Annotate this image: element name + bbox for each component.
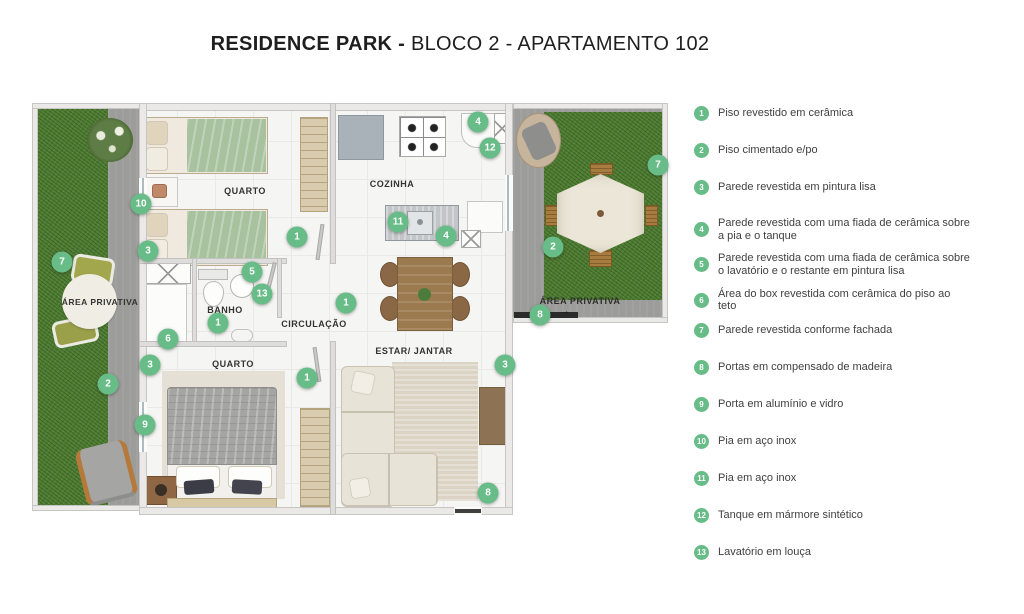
dining-chair-4	[450, 296, 470, 321]
plan-marker-3: 3	[140, 355, 161, 376]
legend-text: Lavatório em louça	[718, 546, 811, 559]
wall-kitchen-divider	[330, 103, 336, 264]
side-table-decor-icon	[155, 484, 167, 496]
legend-item-4: 4Parede revestida com uma fiada de cerâm…	[694, 217, 996, 242]
plant-icon	[87, 118, 133, 162]
tv-stand	[479, 387, 506, 445]
unit-wall-left	[139, 103, 147, 515]
bench-top	[590, 163, 613, 175]
legend-text: Porta em alumínio e vidro	[718, 398, 843, 411]
plan-marker-8: 8	[478, 483, 499, 504]
legend-badge-5: 5	[694, 257, 709, 272]
legend-item-8: 8Portas em compensado de madeira	[694, 360, 996, 375]
legend-badge-7: 7	[694, 323, 709, 338]
estar-door-icon	[455, 509, 481, 513]
room-label-area-privativa-left: ÁREA PRIVATIVA	[62, 297, 139, 307]
plan-marker-5: 5	[242, 262, 263, 283]
plan-marker-9: 9	[135, 415, 156, 436]
room-label-quarto1: QUARTO	[224, 186, 266, 196]
sofa-pillow-2	[348, 476, 371, 499]
left-patio-wall-left	[32, 103, 38, 511]
wall-banho-left	[192, 258, 197, 346]
accent-pillow-2	[232, 479, 263, 495]
legend-item-13: 13Lavatório em louça	[694, 545, 996, 560]
left-patio-wall-top	[32, 103, 140, 109]
legend-item-11: 11Pia em aço inox	[694, 471, 996, 486]
table-plant-icon	[418, 288, 431, 301]
room-label-quarto2: QUARTO	[212, 359, 254, 369]
legend-item-5: 5Parede revestida com uma fiada de cerâm…	[694, 252, 996, 277]
wardrobe-quarto2	[300, 408, 330, 507]
dining-chair-2	[450, 262, 470, 287]
toilet-tank-icon	[198, 269, 228, 280]
bed-single-2-blanket	[187, 211, 266, 264]
wardrobe-quarto1	[300, 117, 328, 212]
legend-text: Tanque em mármore sintético	[718, 509, 863, 522]
unit-wall-top	[139, 103, 513, 111]
legend-badge-3: 3	[694, 180, 709, 195]
legend-text: Pia em aço inox	[718, 435, 796, 448]
legend-text: Parede revestida conforme fachada	[718, 324, 892, 337]
legend-badge-9: 9	[694, 397, 709, 412]
plan-marker-13: 13	[252, 284, 273, 305]
plan-marker-1: 1	[297, 368, 318, 389]
title-project-name: RESIDENCE PARK -	[211, 33, 405, 55]
umbrella-pole-icon	[597, 210, 604, 217]
vanity-top-icon	[145, 263, 191, 284]
plan-marker-7: 7	[52, 252, 73, 273]
left-patio-wall-bottom	[32, 505, 140, 511]
sofa-pillow-1	[350, 370, 376, 396]
bed-single-1-pillow-2	[146, 147, 168, 171]
right-patio-wall-right	[662, 103, 668, 323]
plan-marker-10: 10	[131, 194, 152, 215]
plan-marker-2: 2	[98, 374, 119, 395]
legend-item-2: 2Piso cimentado e/po	[694, 143, 996, 158]
title-unit-name: BLOCO 2 - APARTAMENTO 102	[405, 33, 709, 55]
legend-text: Piso revestido em cerâmica	[718, 107, 853, 120]
legend-badge-4: 4	[694, 222, 709, 237]
kitchen-patio-door-icon	[507, 175, 509, 231]
legend-badge-10: 10	[694, 434, 709, 449]
plan-marker-1: 1	[287, 227, 308, 248]
plan-marker-4: 4	[468, 112, 489, 133]
legend-item-1: 1Piso revestido em cerâmica	[694, 106, 996, 121]
plan-marker-4: 4	[436, 226, 457, 247]
bed-single-1-blanket	[187, 119, 266, 172]
plan-marker-3: 3	[138, 241, 159, 262]
legend-text: Área do box revestida com cerâmica do pi…	[718, 288, 950, 313]
page-title: RESIDENCE PARK - BLOCO 2 - APARTAMENTO 1…	[0, 33, 920, 56]
kitchen-cabinet	[467, 201, 503, 233]
bed-single-2-pillow	[146, 213, 168, 237]
legend-text: Portas em compensado de madeira	[718, 361, 892, 374]
legend-item-10: 10Pia em aço inox	[694, 434, 996, 449]
plan-marker-6: 6	[158, 329, 179, 350]
right-patio-wall-top	[513, 103, 668, 109]
legend-text: Piso cimentado e/po	[718, 144, 818, 157]
room-label-estar-jantar: ESTAR/ JANTAR	[375, 346, 452, 356]
plan-marker-1: 1	[336, 293, 357, 314]
legend-item-12: 12Tanque em mármore sintético	[694, 508, 996, 523]
legend-badge-13: 13	[694, 545, 709, 560]
legend-text: Parede revestida em pintura lisa	[718, 181, 876, 194]
fridge-icon	[338, 115, 384, 160]
plan-marker-11: 11	[388, 212, 409, 233]
wall-banho-right	[277, 258, 282, 318]
double-bed-blanket	[167, 387, 277, 465]
accent-pillow-1	[184, 479, 215, 495]
plan-marker-8: 8	[530, 305, 551, 326]
legend-item-7: 7Parede revestida conforme fachada	[694, 323, 996, 338]
room-label-cozinha: COZINHA	[370, 179, 415, 189]
wall-quarto2-right	[330, 341, 336, 515]
plan-marker-2: 2	[543, 237, 564, 258]
plan-marker-3: 3	[495, 355, 516, 376]
plan-marker-7: 7	[648, 155, 669, 176]
unit-wall-right	[505, 103, 513, 515]
legend-badge-11: 11	[694, 471, 709, 486]
legend-badge-8: 8	[694, 360, 709, 375]
room-label-circulacao: CIRCULAÇÃO	[281, 319, 347, 329]
plan-marker-12: 12	[480, 138, 501, 159]
lamp-icon	[152, 184, 167, 198]
legend-text: Parede revestida com uma fiada de cerâmi…	[718, 217, 970, 242]
bench-right	[645, 205, 658, 226]
legend-item-3: 3Parede revestida em pintura lisa	[694, 180, 996, 195]
bench-left	[545, 205, 558, 226]
floorplan-page: RESIDENCE PARK - BLOCO 2 - APARTAMENTO 1…	[0, 0, 1024, 614]
appliance-space-icon	[461, 230, 481, 248]
room-label-area-privativa-right: ÁREA PRIVATIVA	[540, 296, 621, 306]
legend: 1Piso revestido em cerâmica2Piso cimenta…	[694, 106, 996, 582]
plan-marker-1: 1	[208, 313, 229, 334]
legend-text: Parede revestida com uma fiada de cerâmi…	[718, 252, 970, 277]
wall-quarto1-bottom	[139, 258, 287, 264]
legend-item-9: 9Porta em alumínio e vidro	[694, 397, 996, 412]
stove-icon	[399, 116, 446, 157]
bed-single-1-pillow	[146, 121, 168, 145]
legend-badge-12: 12	[694, 508, 709, 523]
sink-drain-icon	[417, 219, 423, 225]
legend-badge-2: 2	[694, 143, 709, 158]
legend-badge-1: 1	[694, 106, 709, 121]
legend-badge-6: 6	[694, 293, 709, 308]
legend-item-6: 6Área do box revestida com cerâmica do p…	[694, 288, 996, 313]
legend-text: Pia em aço inox	[718, 472, 796, 485]
